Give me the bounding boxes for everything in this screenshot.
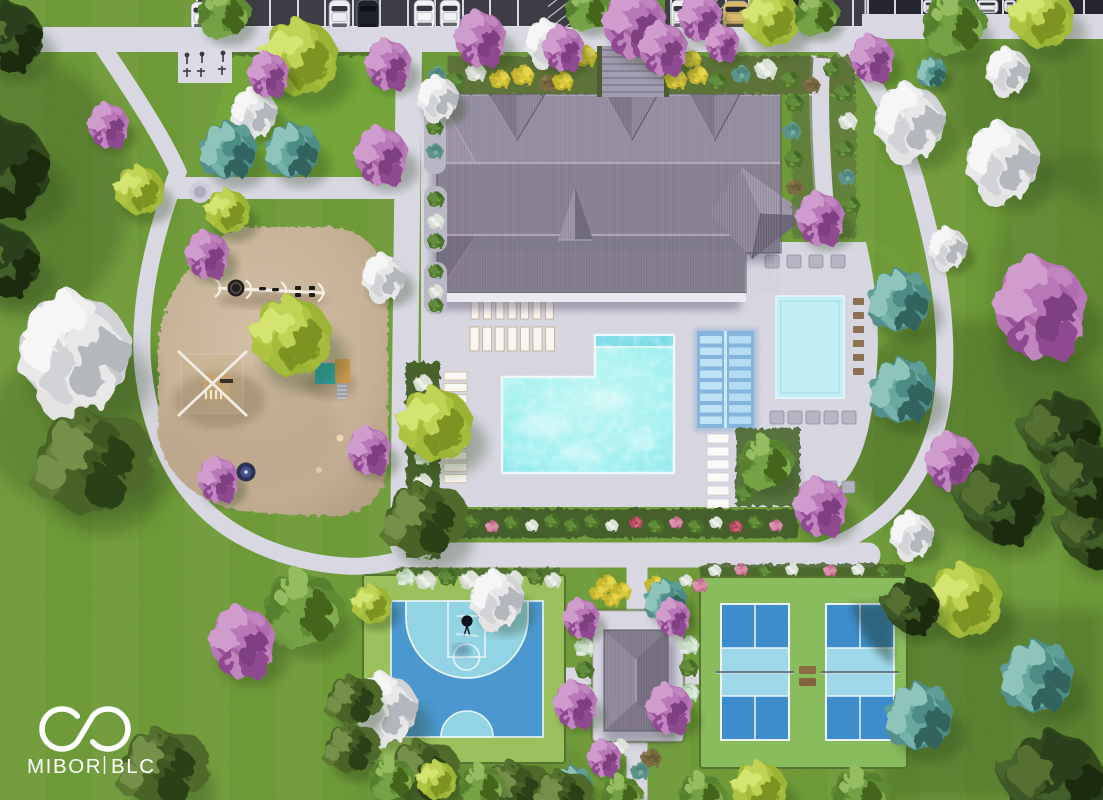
- svg-text:BLC: BLC: [111, 755, 156, 778]
- svg-text:MIBOR: MIBOR: [27, 755, 102, 778]
